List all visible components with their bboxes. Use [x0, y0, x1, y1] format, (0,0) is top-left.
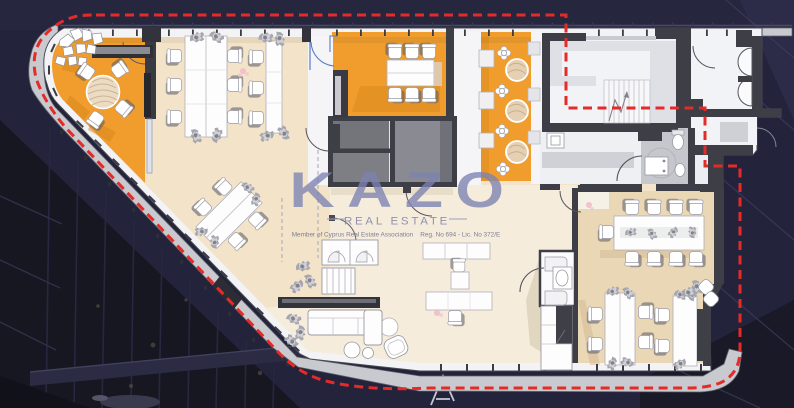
svg-text:Member of Cyprus Real Estate A: Member of Cyprus Real Estate Association… [292, 232, 501, 239]
svg-text:REAL ESTATE: REAL ESTATE [344, 216, 450, 228]
svg-text:KAZO: KAZO [289, 162, 516, 218]
